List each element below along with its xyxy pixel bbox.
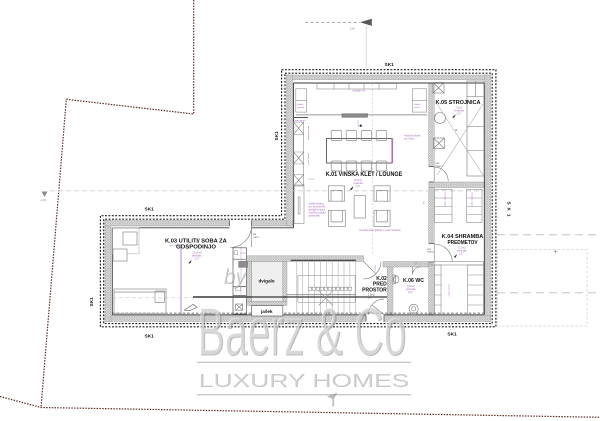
svg-text:7,3m2: 7,3m2	[456, 108, 463, 110]
svg-text:11,7m2: 11,7m2	[458, 248, 466, 250]
svg-text:Osvetlitev/talni priklopi v sr: Osvetlitev/talni priklopi v sredini sede…	[359, 229, 401, 232]
svg-text:hladiln.: hladiln.	[297, 104, 304, 106]
svg-text:SK1: SK1	[145, 334, 155, 340]
svg-text:2,27: 2,27	[356, 186, 361, 188]
svg-text:omara: omara	[414, 106, 421, 109]
svg-text:SK1: SK1	[274, 131, 280, 141]
svg-text:SK1: SK1	[145, 207, 155, 213]
svg-text:1,82m2: 1,82m2	[407, 286, 415, 288]
svg-text:Hladnilne škatle: Hladnilne škatle	[404, 134, 421, 137]
svg-text:30,0m2: 30,0m2	[354, 180, 362, 182]
svg-text:keramika: keramika	[354, 182, 364, 185]
svg-text:1/60/2,7: 1/60/2,7	[435, 166, 444, 168]
svg-text:Baerz & Co: Baerz & Co	[197, 293, 406, 369]
svg-text:keramika: keramika	[192, 254, 202, 257]
svg-text:keramika: keramika	[457, 250, 467, 253]
svg-text:KAMIN lokalno: KAMIN lokalno	[309, 202, 325, 205]
svg-text:-2,60: -2,60	[40, 198, 46, 202]
svg-text:1/91/7: 1/91/7	[373, 265, 375, 272]
svg-text:K.05 STROJNICA: K.05 STROJNICA	[436, 100, 481, 106]
svg-text:SK1: SK1	[89, 297, 95, 307]
svg-text:2,27: 2,27	[408, 292, 413, 294]
svg-text:kamin: kamin	[309, 179, 316, 181]
svg-text:SK1: SK1	[385, 62, 395, 68]
svg-text:pritisni tlaki: pritisni tlaki	[309, 214, 321, 217]
svg-text:kovinski regali: kovinski regali	[470, 193, 473, 207]
svg-text:lesene police: lesene police	[447, 284, 449, 298]
svg-text:hladiln.: hladiln.	[414, 104, 421, 106]
svg-text:K.06 WC: K.06 WC	[403, 278, 424, 284]
svg-text:vinske police: vinske police	[307, 153, 309, 166]
svg-text:2,27: 2,27	[457, 114, 462, 116]
svg-text:PREDMETOV: PREDMETOV	[448, 240, 479, 246]
svg-text:vinski hladilnik: vinski hladilnik	[307, 126, 309, 141]
svg-text:keramika: keramika	[406, 288, 416, 291]
svg-text:GOSPODINJO: GOSPODINJO	[176, 244, 216, 250]
svg-text:kovinski regali: kovinski regali	[444, 193, 447, 207]
svg-text:K.01 VINSKA KLET / LOUNGE: K.01 VINSKA KLET / LOUNGE	[326, 171, 403, 178]
svg-text:vpr. hladn.: vpr. hladn.	[404, 137, 415, 140]
svg-text:LxD 2x: LxD 2x	[357, 121, 359, 129]
svg-text:štedilnik knauba: štedilnik knauba	[309, 208, 326, 211]
svg-text:21,00 m2: 21,00 m2	[193, 252, 203, 254]
svg-text:-2,60: -2,60	[349, 27, 355, 31]
svg-text:2,27: 2,27	[195, 258, 200, 260]
svg-text:kur. na drva+Plu: kur. na drva+Plu	[309, 205, 326, 208]
svg-text:Kna/Plus zaščitni: Kna/Plus zaščitni	[309, 211, 327, 214]
svg-text:keramika: keramika	[455, 110, 465, 113]
svg-text:LUXURY HOMES: LUXURY HOMES	[198, 370, 408, 390]
svg-text:2,27: 2,27	[459, 254, 464, 256]
svg-text:SK1: SK1	[447, 331, 457, 337]
svg-text:1/91/7: 1/91/7	[253, 237, 260, 239]
svg-text:kuhinjski niz: kuhinjski niz	[353, 91, 366, 93]
svg-text:SK1: SK1	[506, 202, 512, 217]
svg-text:by: by	[223, 265, 247, 288]
svg-text:K.04 SHRAMBA: K.04 SHRAMBA	[442, 234, 484, 240]
svg-text:dvigalo: dvigalo	[259, 279, 275, 284]
svg-text:vgradni: vgradni	[297, 106, 305, 109]
svg-text:1/60/2,7: 1/60/2,7	[427, 252, 436, 254]
